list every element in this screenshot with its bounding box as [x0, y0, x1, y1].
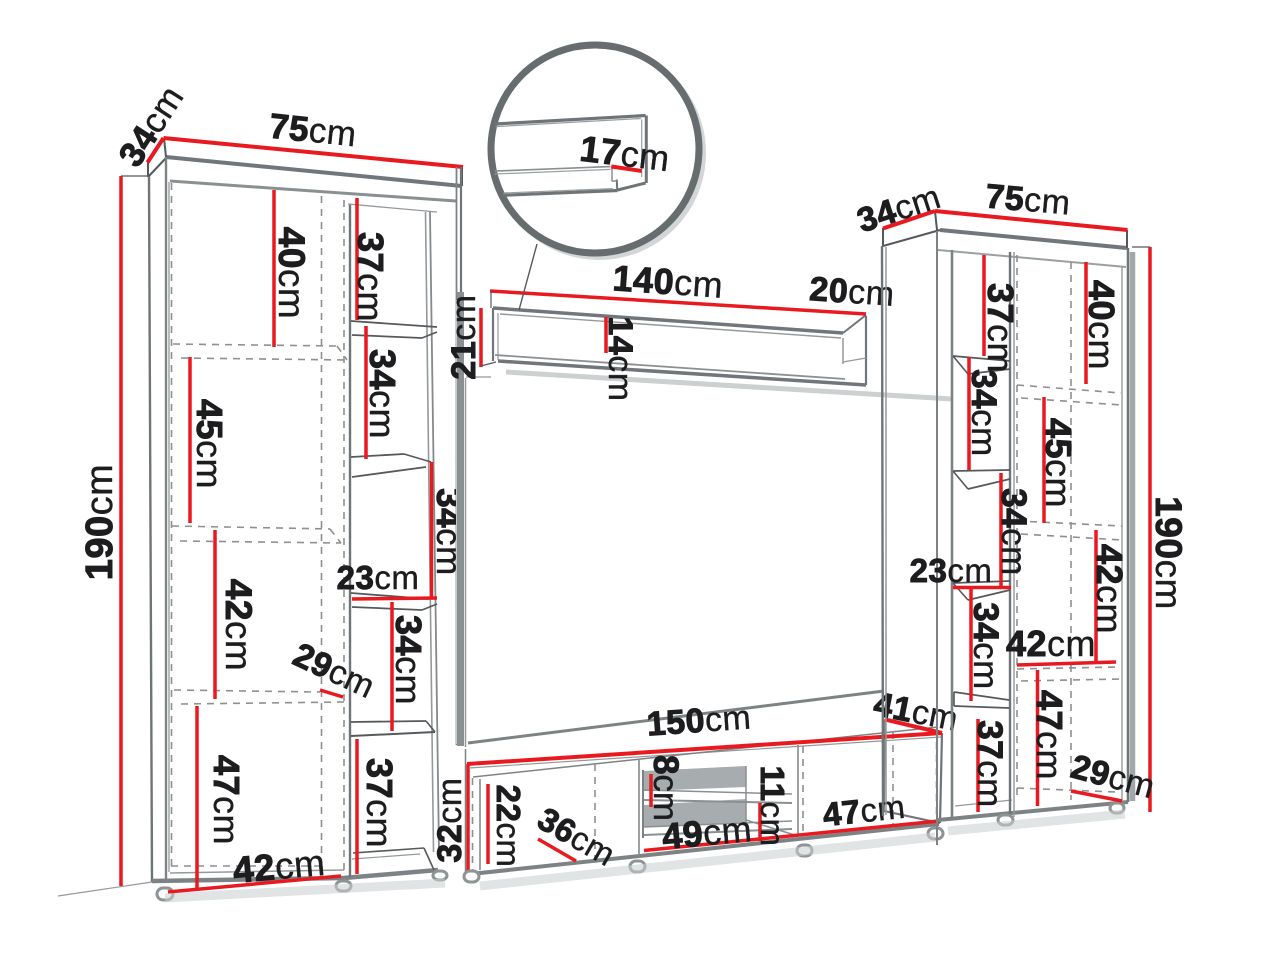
svg-text:34cm: 34cm — [965, 369, 1004, 457]
svg-text:23cm: 23cm — [337, 559, 420, 596]
svg-text:42cm: 42cm — [219, 579, 260, 671]
svg-text:42cm: 42cm — [1006, 623, 1096, 664]
svg-text:47cm: 47cm — [1030, 690, 1071, 780]
svg-text:34cm: 34cm — [995, 488, 1034, 576]
svg-text:34cm: 34cm — [389, 615, 430, 705]
svg-text:40cm: 40cm — [1082, 280, 1123, 370]
svg-text:40cm: 40cm — [272, 227, 313, 319]
svg-text:37cm: 37cm — [981, 283, 1022, 373]
svg-text:75cm: 75cm — [984, 177, 1072, 222]
svg-text:34cm: 34cm — [967, 602, 1006, 690]
svg-text:32cm: 32cm — [431, 777, 469, 862]
svg-text:37cm: 37cm — [971, 720, 1010, 808]
svg-text:22cm: 22cm — [491, 785, 528, 868]
svg-text:34cm: 34cm — [853, 178, 946, 240]
svg-text:21cm: 21cm — [445, 294, 483, 379]
svg-text:49cm: 49cm — [660, 808, 753, 857]
svg-text:75cm: 75cm — [267, 106, 358, 154]
svg-text:37cm: 37cm — [360, 758, 401, 848]
svg-text:190cm: 190cm — [79, 464, 121, 581]
svg-text:190cm: 190cm — [1149, 496, 1190, 610]
svg-text:150cm: 150cm — [646, 698, 753, 743]
svg-text:45cm: 45cm — [190, 399, 231, 489]
svg-text:14cm: 14cm — [601, 316, 639, 401]
svg-text:42cm: 42cm — [1090, 544, 1131, 634]
svg-text:23cm: 23cm — [910, 552, 993, 589]
svg-text:45cm: 45cm — [1039, 418, 1080, 508]
svg-text:8cm: 8cm — [647, 755, 686, 821]
svg-text:140cm: 140cm — [611, 257, 724, 306]
svg-text:42cm: 42cm — [231, 842, 327, 891]
svg-text:37cm: 37cm — [351, 232, 392, 322]
svg-text:47cm: 47cm — [207, 755, 248, 845]
svg-text:34cm: 34cm — [363, 349, 404, 439]
svg-text:11cm: 11cm — [755, 766, 792, 847]
